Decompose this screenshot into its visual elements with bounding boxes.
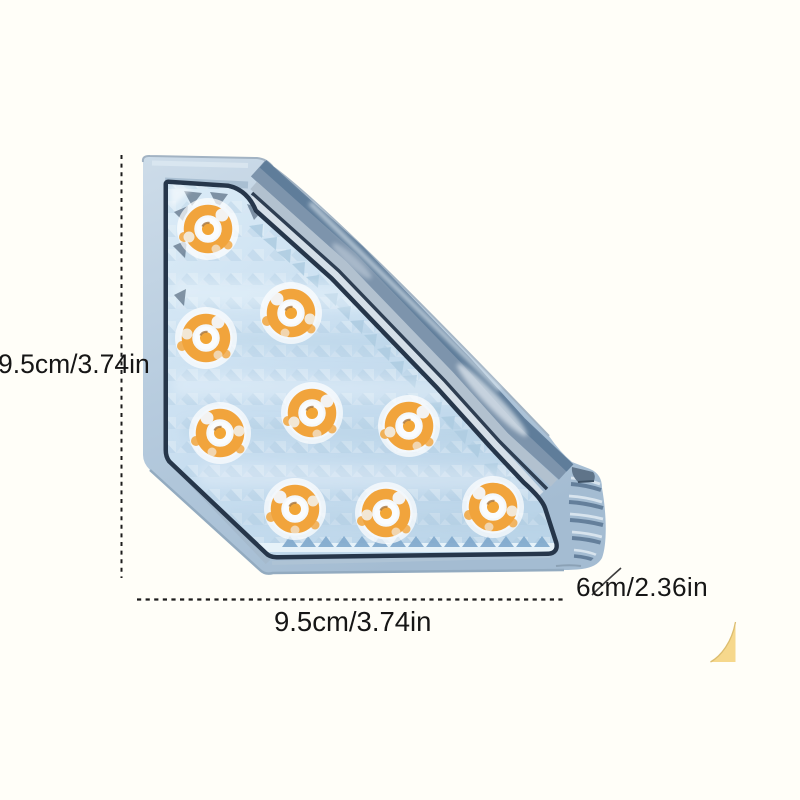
svg-text:6cm/2.36in: 6cm/2.36in [576, 572, 708, 602]
svg-text:9.5cm/3.74in: 9.5cm/3.74in [0, 349, 150, 379]
svg-text:9.5cm/3.74in: 9.5cm/3.74in [274, 606, 431, 637]
